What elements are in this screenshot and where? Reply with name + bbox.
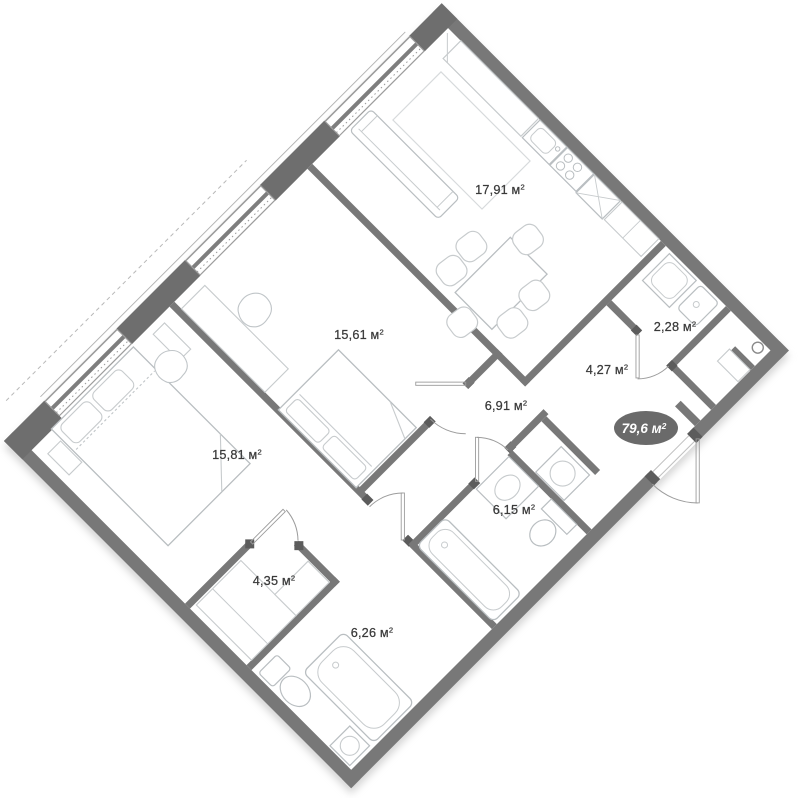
svg-text:6,26 м2: 6,26 м2 xyxy=(351,626,394,640)
svg-text:79,6 м2: 79,6 м2 xyxy=(622,421,667,436)
svg-text:4,35 м2: 4,35 м2 xyxy=(253,574,296,588)
svg-text:6,91 м2: 6,91 м2 xyxy=(485,399,528,413)
svg-text:6,15 м2: 6,15 м2 xyxy=(493,503,536,517)
svg-text:15,81 м2: 15,81 м2 xyxy=(212,448,262,462)
svg-text:15,61 м2: 15,61 м2 xyxy=(334,328,384,342)
svg-text:17,91 м2: 17,91 м2 xyxy=(475,183,525,197)
svg-text:4,27 м2: 4,27 м2 xyxy=(586,363,629,377)
svg-text:2,28 м2: 2,28 м2 xyxy=(654,320,697,334)
